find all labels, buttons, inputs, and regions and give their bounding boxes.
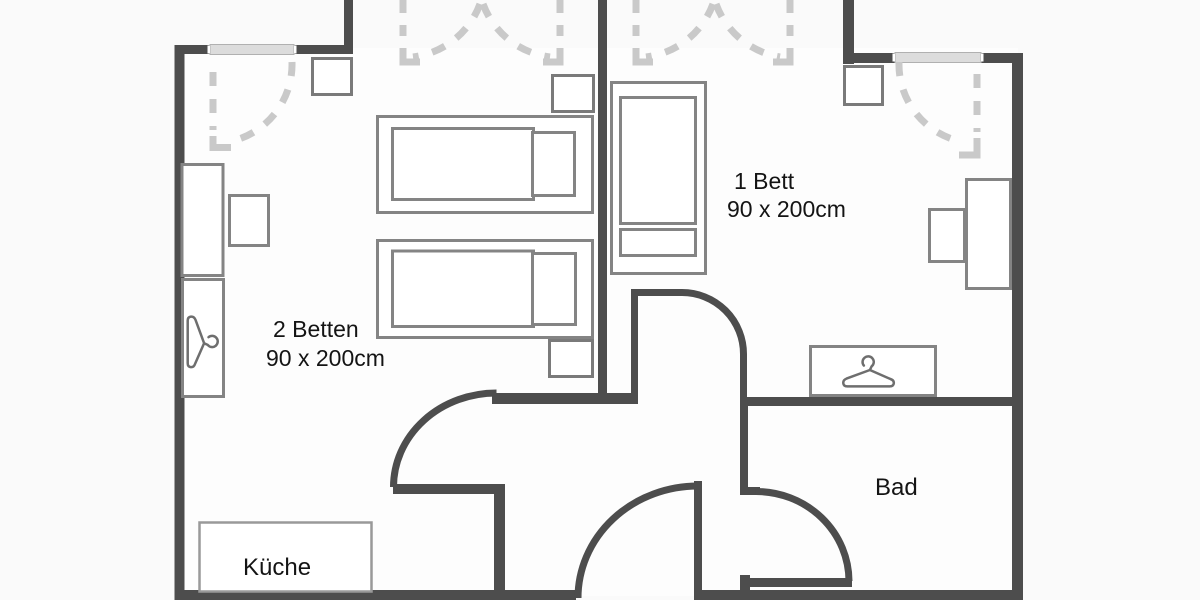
svg-text:2 Betten: 2 Betten [273, 316, 359, 342]
svg-text:90 x 200cm: 90 x 200cm [266, 345, 385, 371]
svg-text:90 x 200cm: 90 x 200cm [727, 196, 846, 222]
svg-text:Bad: Bad [875, 474, 918, 501]
svg-text:Küche: Küche [243, 554, 311, 581]
svg-text:1 Bett: 1 Bett [734, 168, 795, 194]
